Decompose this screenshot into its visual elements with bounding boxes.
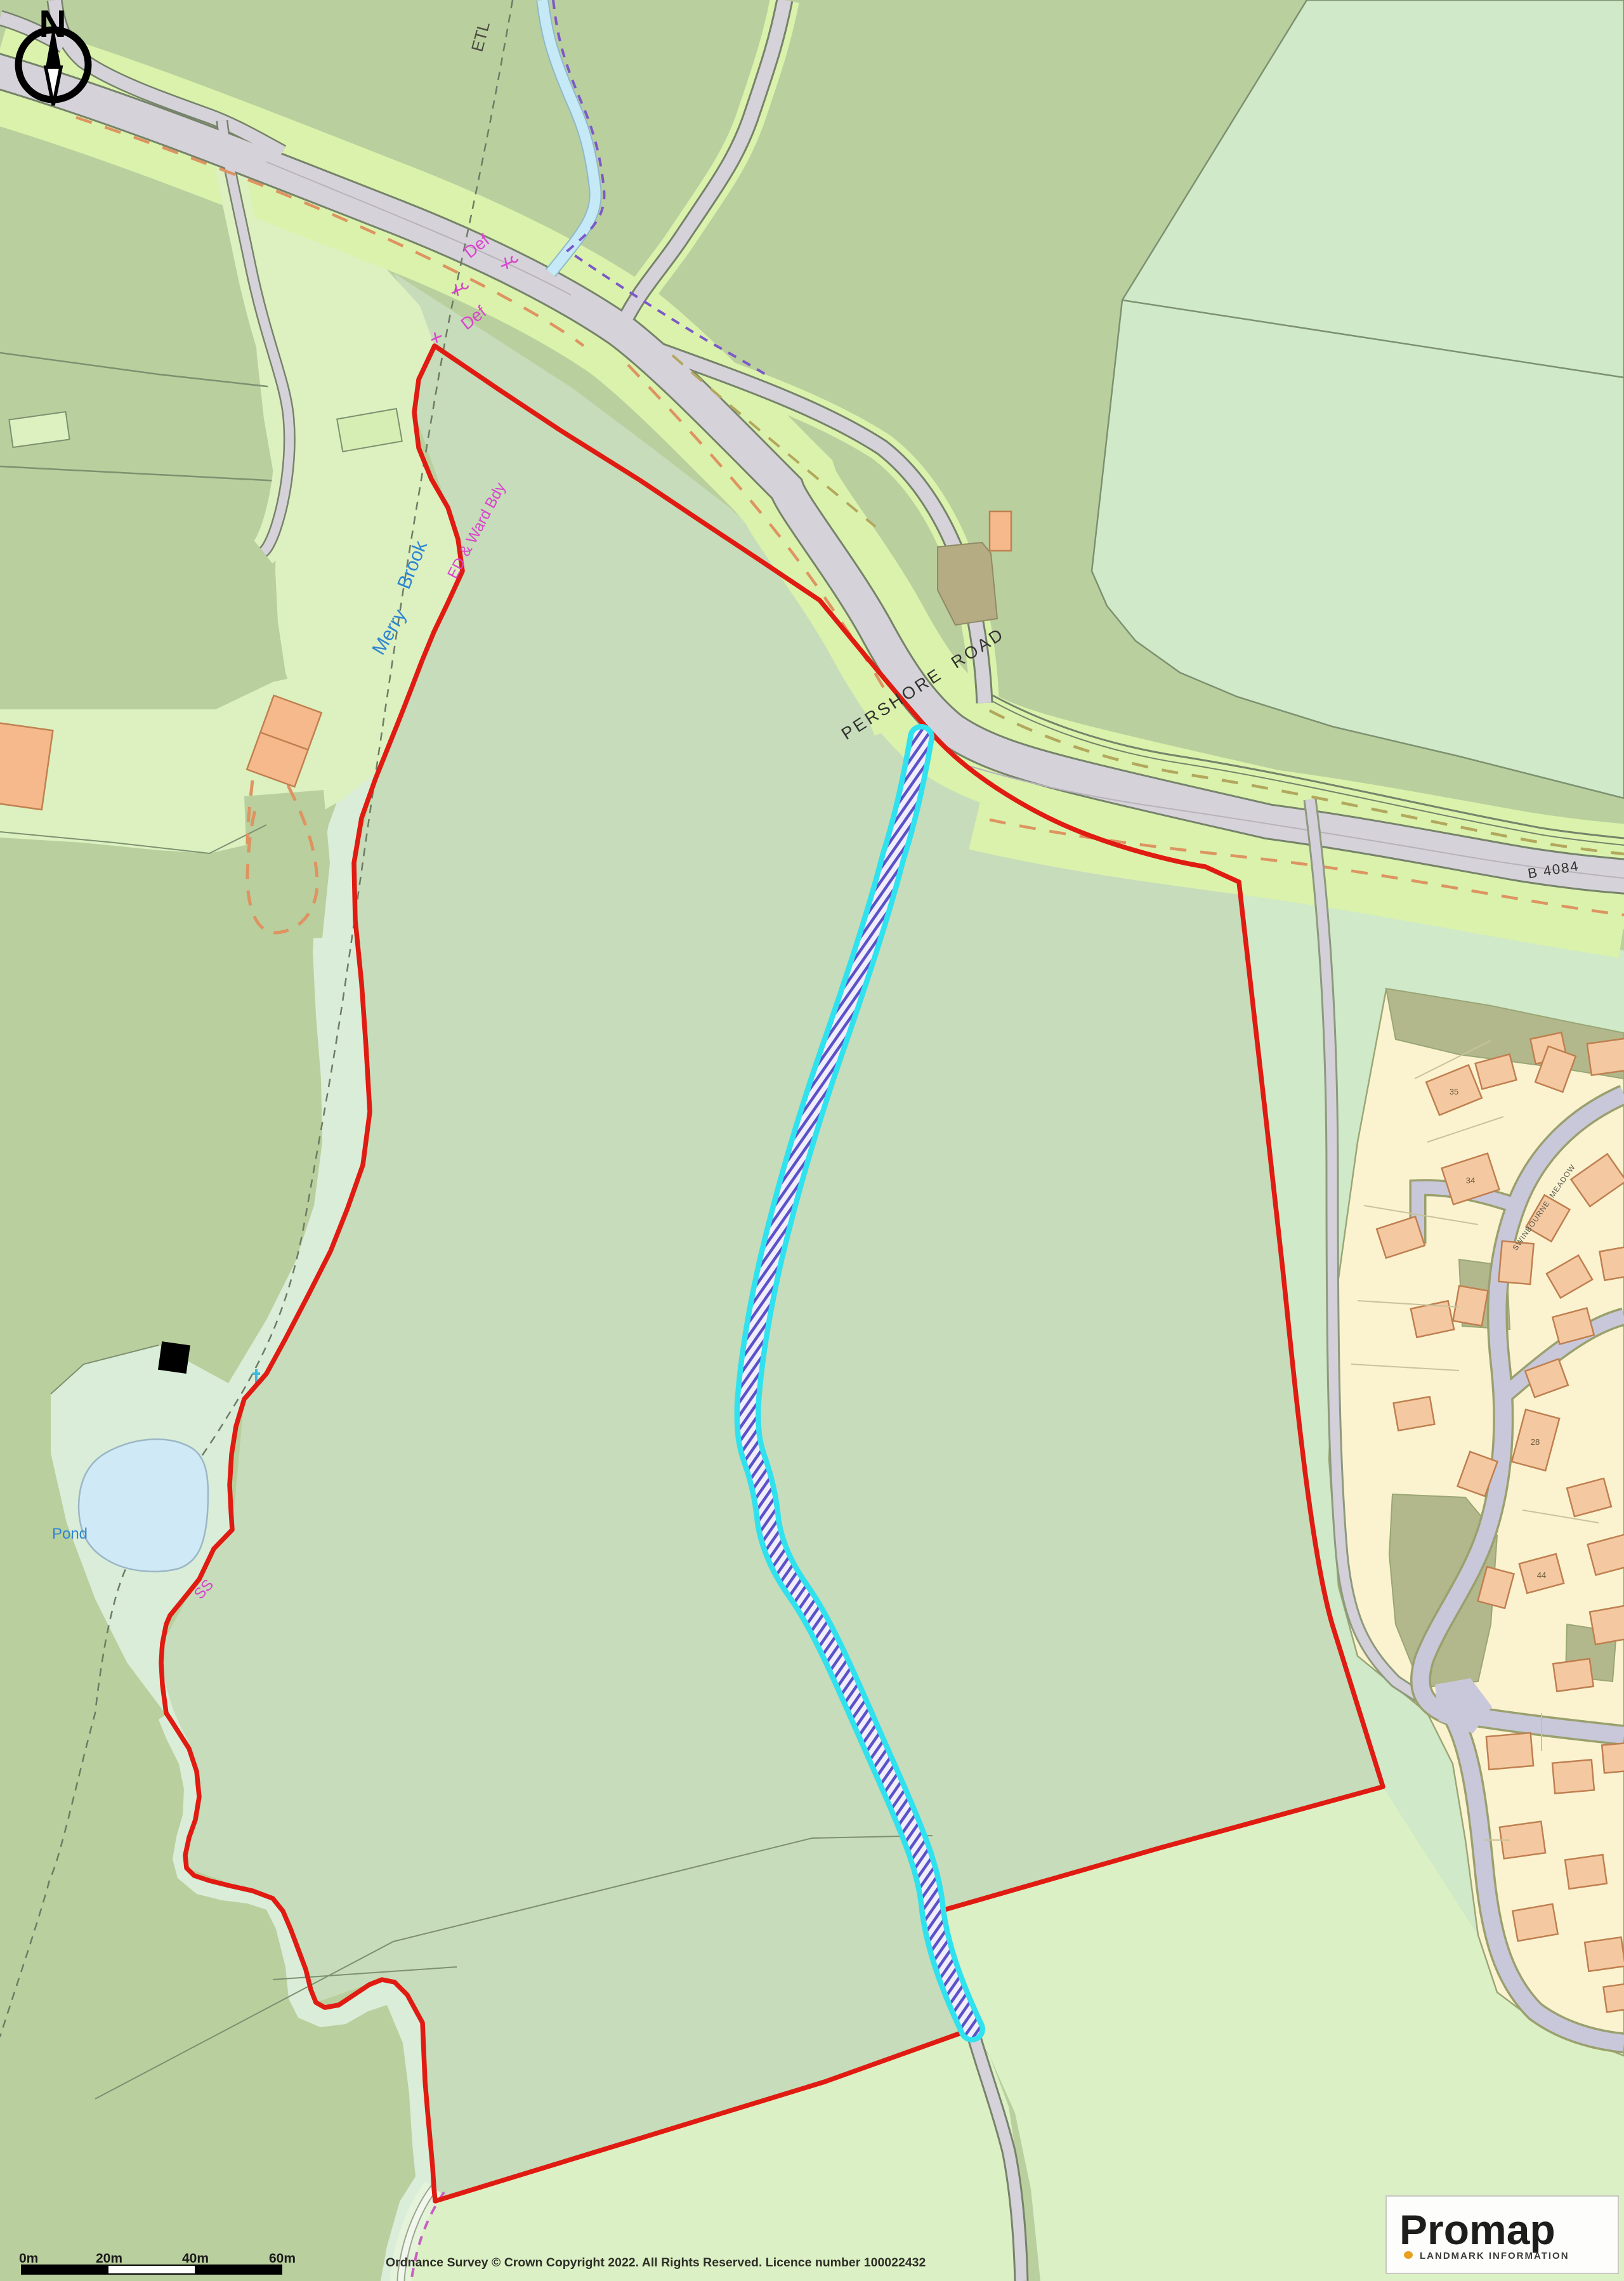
svg-text:20m: 20m [96,2251,122,2266]
svg-text:28: 28 [1531,1437,1540,1447]
svg-text:Ordnance Survey © Crown Copyri: Ordnance Survey © Crown Copyright 2022. … [386,2256,926,2270]
svg-text:0m: 0m [19,2251,38,2266]
svg-text:N: N [39,3,66,45]
svg-text:60m: 60m [269,2251,296,2266]
svg-text:35: 35 [1450,1087,1458,1096]
svg-text:Promap: Promap [1399,2206,1555,2253]
svg-text:Pond: Pond [52,1525,88,1542]
svg-text:LANDMARK INFORMATION: LANDMARK INFORMATION [1420,2251,1569,2261]
svg-text:34: 34 [1466,1176,1475,1185]
svg-text:40m: 40m [182,2251,209,2266]
svg-text:44: 44 [1537,1570,1546,1580]
